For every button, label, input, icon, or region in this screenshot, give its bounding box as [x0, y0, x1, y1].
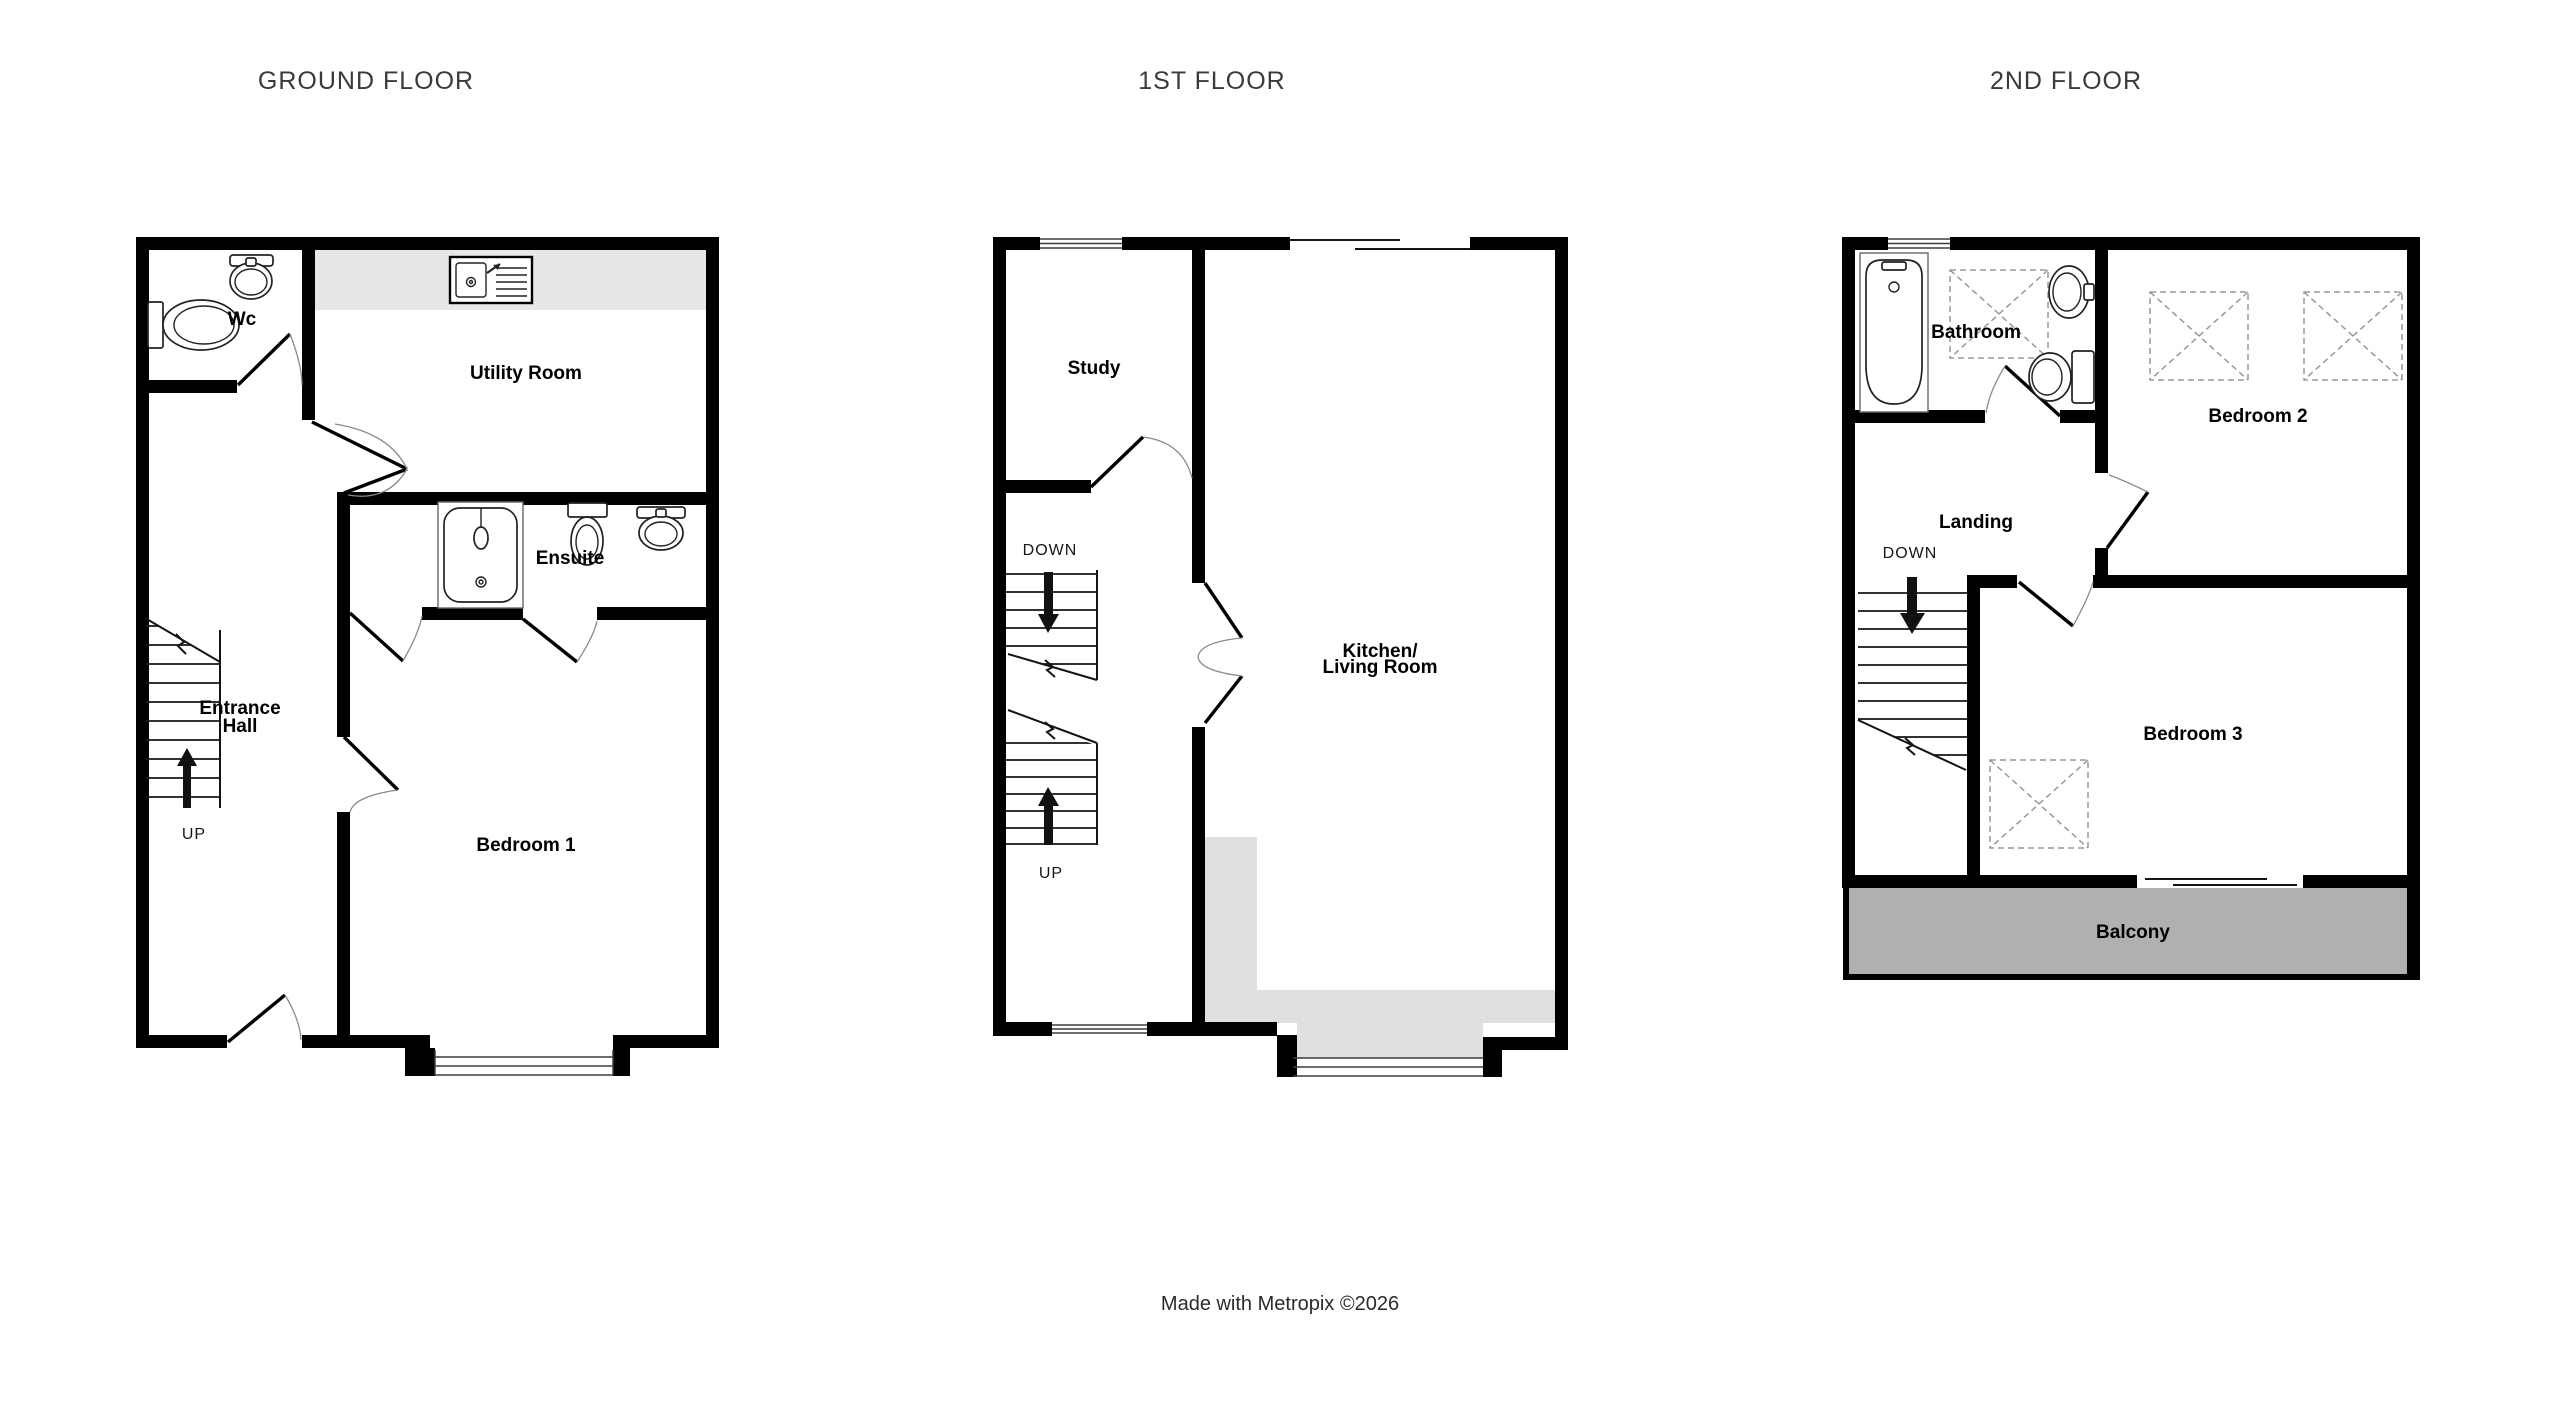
ground-interior-walls	[136, 237, 719, 1035]
up-label: UP	[1039, 865, 1063, 882]
second-floor-title: 2ND FLOOR	[1990, 67, 2142, 96]
down-label: DOWN	[1023, 542, 1078, 559]
first-interior-walls	[993, 237, 1205, 1023]
wc-sink-icon	[230, 255, 273, 299]
shower-icon	[438, 502, 523, 608]
ensuite-door-swing	[350, 613, 422, 661]
open-edge	[1290, 240, 1470, 249]
study-label: Study	[1068, 358, 1121, 379]
kitchen-double-door	[1198, 583, 1242, 723]
up-label: UP	[182, 826, 206, 843]
staircase-down	[1858, 577, 1967, 770]
ensuite-label: Ensuite	[536, 548, 605, 569]
bathroom-toilet-icon	[2029, 351, 2094, 403]
floorplan-page: GROUND FLOOR 1ST FLOOR 2ND FLOOR	[0, 0, 2560, 1417]
utility-room-label: Utility Room	[470, 363, 582, 384]
study-door-swing	[1091, 437, 1192, 487]
down-arrow-icon	[1038, 572, 1059, 633]
ground-floor-plan: Wc Utility Room Ensuite Entrance Hall UP…	[130, 230, 730, 1090]
wc-door-swing	[238, 334, 302, 385]
down-label: DOWN	[1883, 545, 1938, 562]
kitchen-living-label-line2: Living Room	[1322, 657, 1437, 678]
hall-bedroom1-door-swing	[344, 737, 398, 812]
balcony-door	[2145, 879, 2297, 885]
kitchen-sink-icon	[450, 257, 532, 303]
ensuite-sink-icon	[637, 507, 685, 550]
wc-toilet-icon	[148, 300, 239, 350]
entrance-door-swing	[228, 995, 301, 1042]
ground-outer-walls	[136, 237, 719, 1076]
hall-utility-double-door	[312, 422, 407, 496]
window	[1052, 1022, 1147, 1036]
bedroom3-door-swing	[2019, 582, 2093, 626]
ground-floor-title: GROUND FLOOR	[258, 67, 474, 96]
down-arrow-icon	[1900, 577, 1925, 634]
balcony-label: Balcony	[2096, 922, 2170, 943]
first-floor-title: 1ST FLOOR	[1138, 67, 1285, 96]
window	[1040, 237, 1122, 250]
up-arrow-icon	[1038, 787, 1059, 845]
entrance-hall-label-line2: Hall	[223, 716, 258, 737]
staircase-up	[1006, 710, 1098, 845]
ensuite-door-swing-2	[523, 619, 597, 662]
second-floor-plan: Bathroom Bedroom 2 Landing DOWN Bedroom …	[1835, 230, 2435, 990]
bathtub-icon	[1860, 253, 1928, 412]
bathroom-label: Bathroom	[1931, 322, 2021, 343]
shower-icon	[1950, 270, 2048, 358]
wc-label: Wc	[228, 309, 257, 330]
bedroom3-label: Bedroom 3	[2143, 724, 2242, 745]
bedroom2-door-swing	[2107, 475, 2148, 548]
bedroom2-label: Bedroom 2	[2208, 406, 2307, 427]
bay-window	[1293, 1058, 1483, 1076]
wardrobe-icon	[2304, 292, 2402, 380]
staircase-down	[1006, 570, 1097, 680]
metropix-credit: Made with Metropix ©2026	[1161, 1293, 1399, 1316]
bedroom1-label: Bedroom 1	[476, 835, 576, 856]
landing-label: Landing	[1939, 512, 2013, 533]
bathroom-sink-icon	[2049, 266, 2094, 318]
first-floor-plan: Study DOWN UP Kitchen/ Living Room	[985, 230, 1585, 1100]
wardrobe-icon	[2150, 292, 2248, 380]
window	[435, 1050, 613, 1076]
window	[1888, 237, 1950, 250]
wardrobe-icon	[1990, 760, 2088, 848]
